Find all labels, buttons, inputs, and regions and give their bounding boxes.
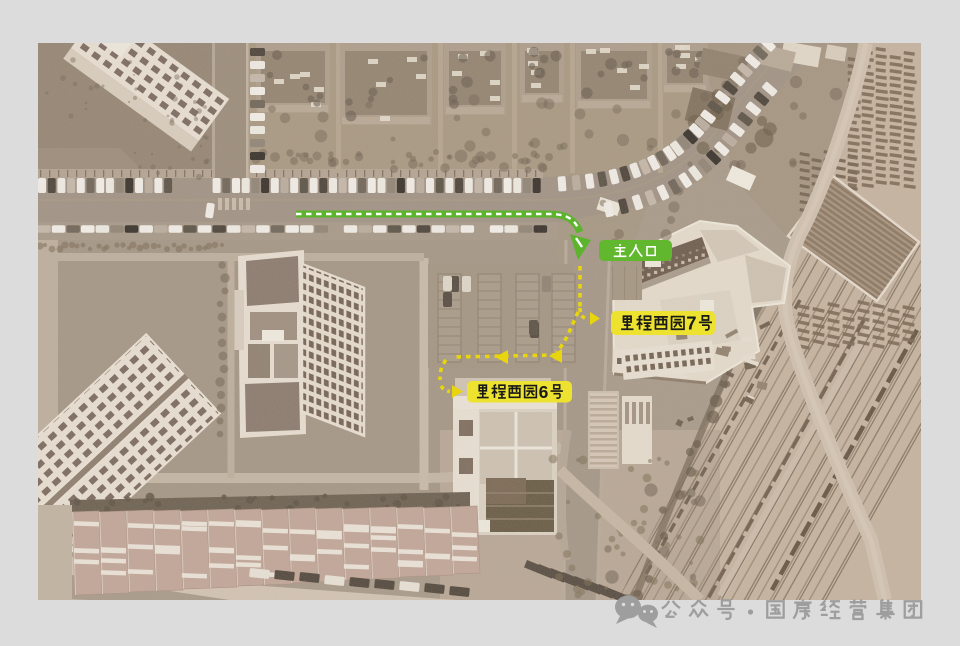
svg-text:6: 6 (539, 382, 549, 402)
svg-text:7: 7 (686, 313, 696, 334)
